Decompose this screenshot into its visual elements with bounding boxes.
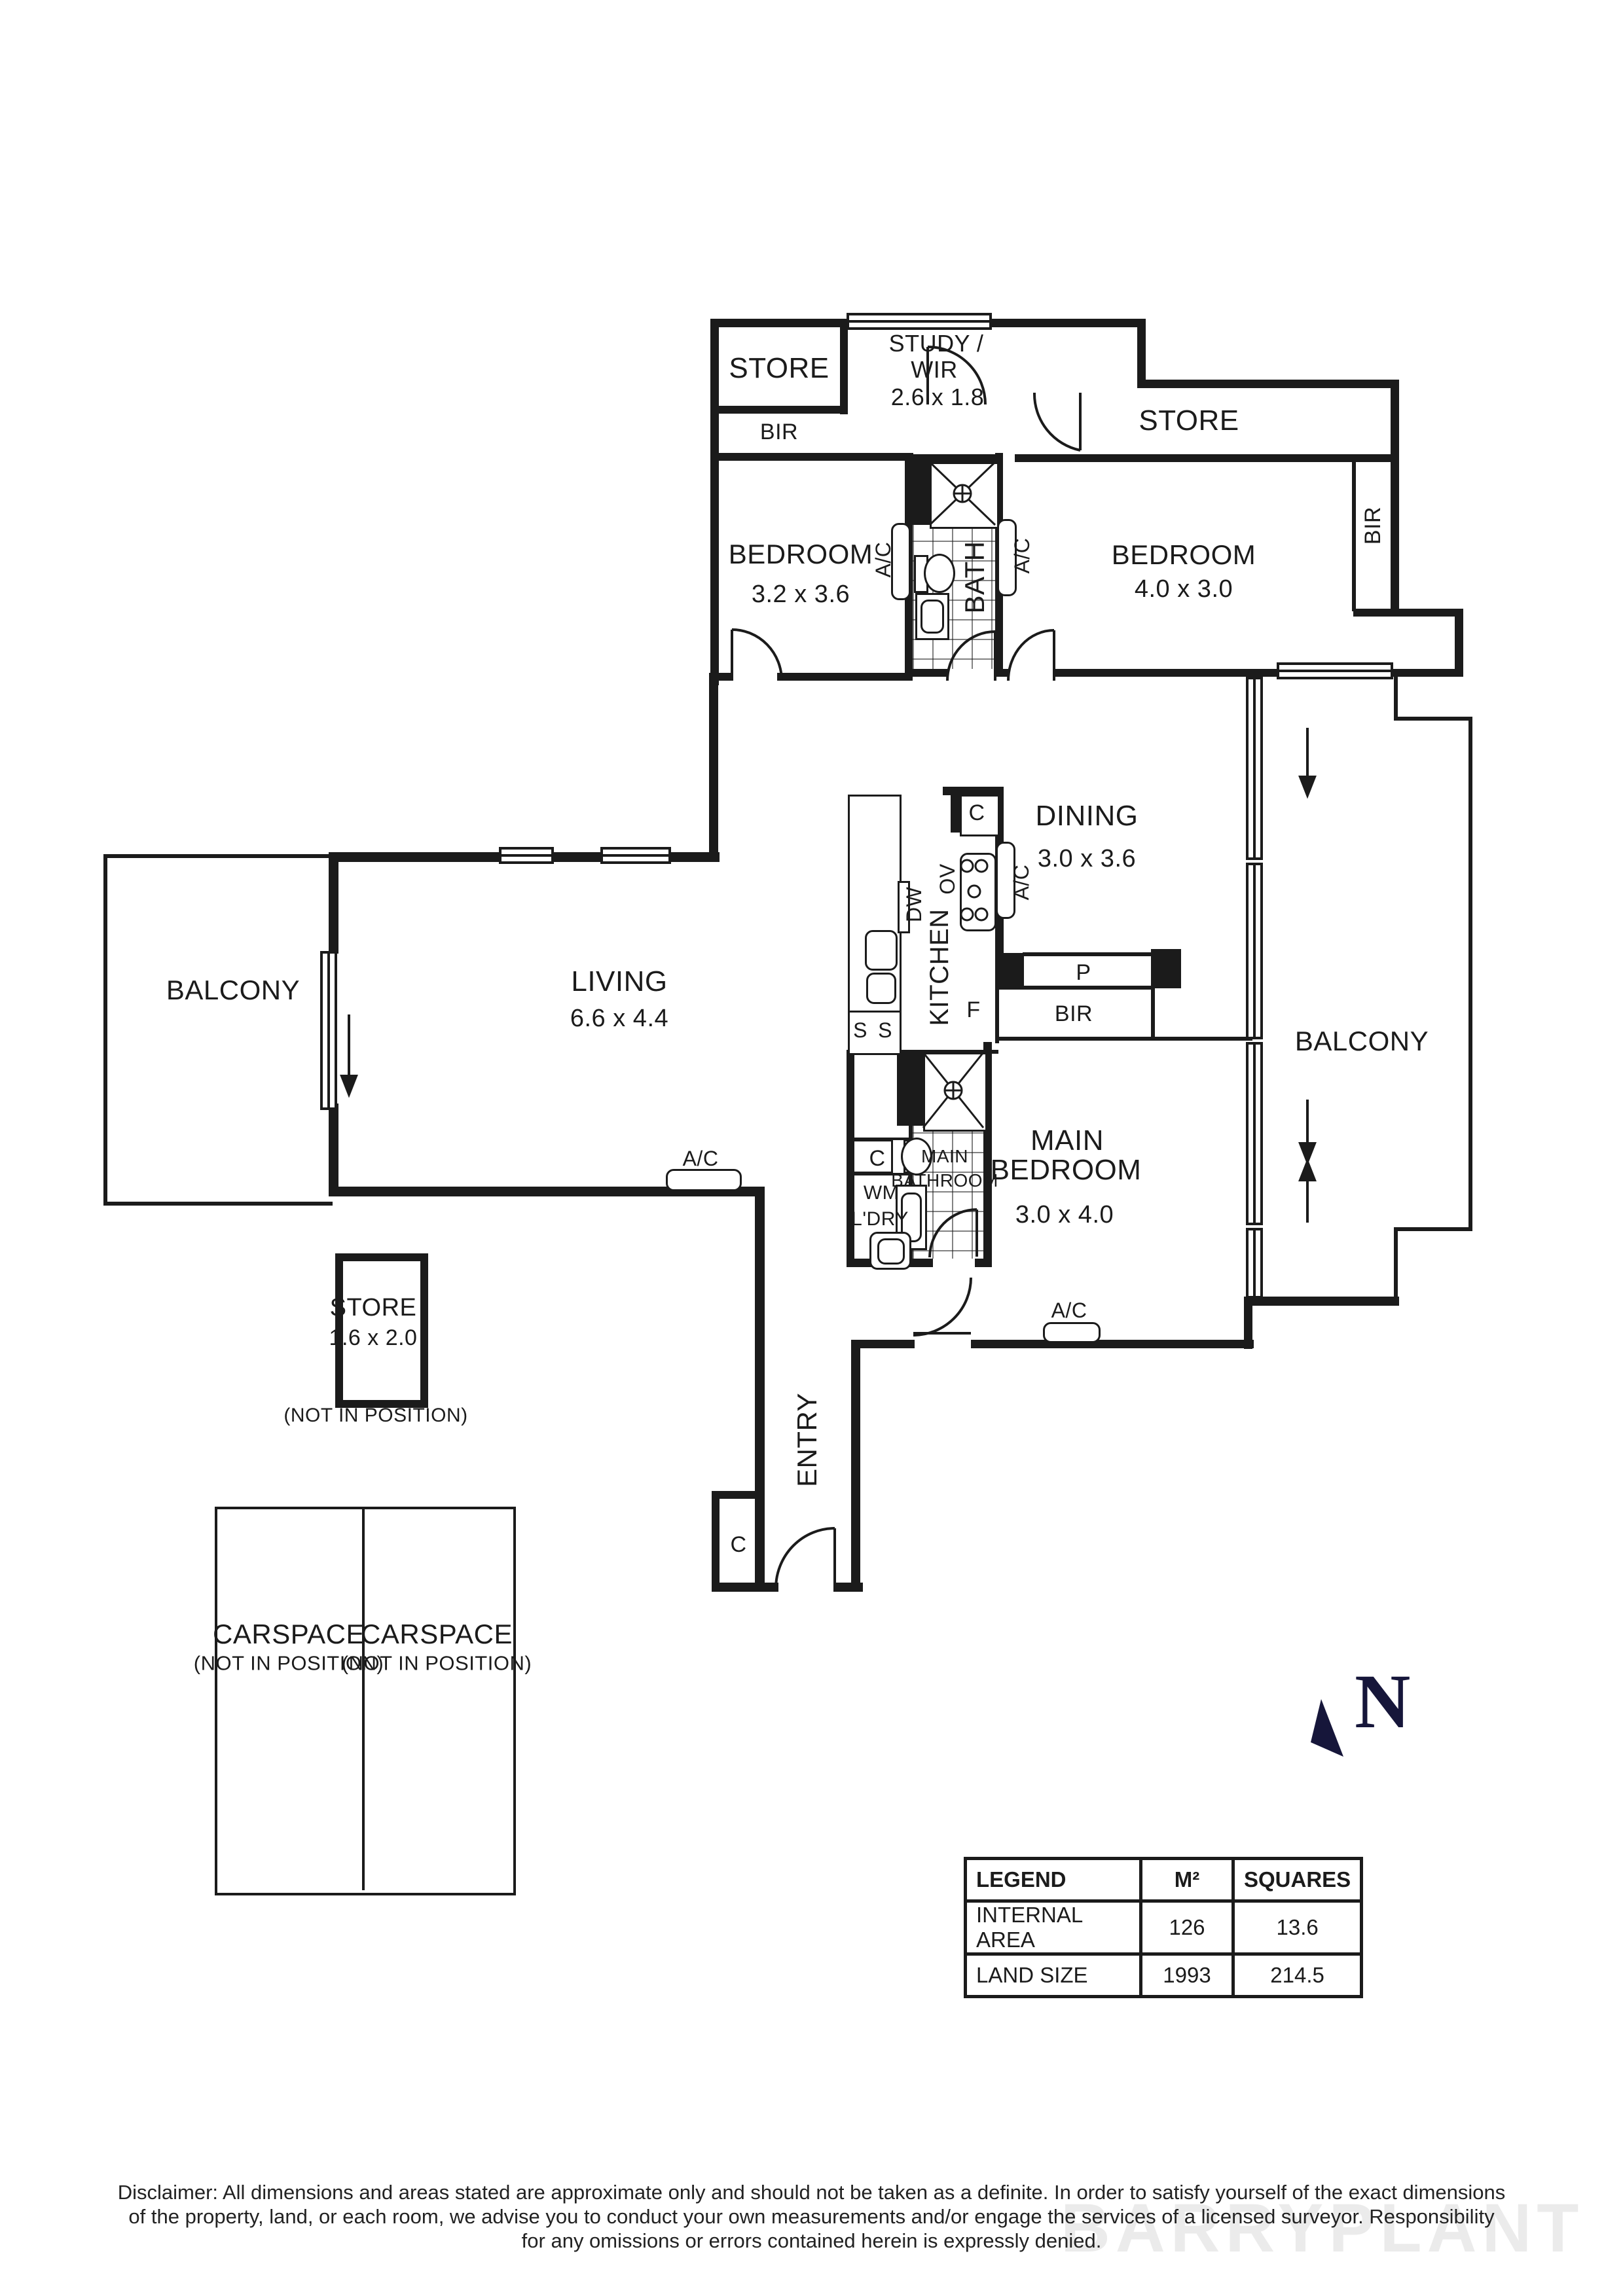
wall-segment <box>710 319 719 685</box>
legend-land-size-squares: 214.5 <box>1233 1954 1362 1997</box>
room-label-bath: BATH <box>961 541 989 614</box>
room-label-bedroom-right: BEDROOM <box>1112 541 1256 569</box>
label-cupboard-entry: C <box>730 1534 746 1556</box>
legend-land-size-m2: 1993 <box>1141 1954 1233 1997</box>
window-horizontal <box>847 313 992 330</box>
room-label-store-top-right: STORE <box>1139 406 1239 435</box>
thin-wall-segment <box>1352 458 1356 611</box>
wall-segment <box>712 1583 778 1592</box>
room-label-store-top-left: STORE <box>729 354 829 383</box>
north-needle-icon <box>1311 1699 1343 1757</box>
note-store-not-in-position: (NOT IN POSITION) <box>283 1406 467 1426</box>
label-ac-living: A/C <box>683 1148 719 1169</box>
thin-wall-segment <box>1394 1227 1398 1297</box>
wall-segment <box>1353 609 1463 617</box>
disclaimer-line-1: Disclaimer: All dimensions and areas sta… <box>0 2182 1623 2202</box>
wall-segment <box>709 673 718 861</box>
window-vertical <box>1246 1228 1263 1299</box>
floorplan-page: BARRYPLANT <box>0 0 1623 2296</box>
thin-wall-segment <box>1394 717 1472 721</box>
room-label-entry: ENTRY <box>793 1393 821 1487</box>
wall-segment <box>1252 669 1279 677</box>
legend-land-size-label: LAND SIZE <box>966 1954 1141 1997</box>
disclaimer-line-3: for any omissions or errors contained he… <box>0 2231 1623 2251</box>
cooktop <box>960 853 996 931</box>
dims-living: 6.6 x 4.4 <box>570 1006 668 1031</box>
wall-segment <box>840 319 848 414</box>
thin-wall-segment <box>997 1037 1154 1041</box>
dims-store-small: 1.6 x 2.0 <box>329 1327 418 1349</box>
dims-bedroom-right: 4.0 x 3.0 <box>1135 577 1233 601</box>
label-cupboard-kitchen: C <box>968 802 985 824</box>
room-label-bedroom-left: BEDROOM <box>729 541 873 568</box>
legend-internal-area-label: INTERNAL AREA <box>966 1901 1141 1954</box>
label-oven: OV <box>937 863 958 894</box>
room-label-main-bedroom-line1: MAIN <box>1030 1126 1104 1155</box>
label-fridge: F <box>966 999 980 1021</box>
label-ac-main-bedroom: A/C <box>1051 1300 1087 1321</box>
legend-row-internal-area: INTERNAL AREA 126 13.6 <box>966 1901 1362 1954</box>
wall-segment <box>847 1054 854 1266</box>
legend-header-row: LEGEND M² SQUARES <box>966 1859 1362 1901</box>
wall-segment <box>971 1340 1254 1348</box>
wall-segment <box>665 852 720 862</box>
wall-segment <box>329 852 500 862</box>
wall-segment <box>984 319 1146 327</box>
wall-segment <box>712 1491 764 1499</box>
wall-segment <box>755 1187 765 1584</box>
carspace-box <box>215 1507 516 1895</box>
vanity-basin-bath <box>921 600 944 634</box>
legend-internal-area-squares: 13.6 <box>1233 1901 1362 1954</box>
label-pantry: P <box>1076 961 1091 984</box>
wall-segment <box>1388 669 1457 677</box>
wall-segment <box>860 1340 915 1348</box>
shower-bath <box>930 462 999 529</box>
wall-segment <box>329 861 338 954</box>
dims-bedroom-left: 3.2 x 3.6 <box>752 582 850 607</box>
wall-segment <box>1054 669 1252 677</box>
window-horizontal <box>600 847 671 864</box>
wall-segment <box>1015 454 1391 462</box>
legend-internal-area-m2: 126 <box>1141 1901 1233 1954</box>
wall-segment <box>712 1491 720 1590</box>
room-label-main-bedroom-line2: BEDROOM <box>991 1156 1142 1185</box>
wall-segment <box>833 1583 863 1592</box>
room-label-study-line1: STUDY / <box>889 332 984 355</box>
wall-segment <box>995 953 1024 988</box>
label-cupboard-laundry: C <box>869 1147 885 1170</box>
room-label-store-small: STORE <box>330 1295 417 1320</box>
wall-segment <box>710 406 840 414</box>
wall-segment <box>1244 1297 1399 1306</box>
wall-segment <box>547 852 602 862</box>
label-bir-main: BIR <box>1055 1003 1093 1025</box>
room-label-balcony-right: BALCONY <box>1295 1028 1429 1055</box>
thin-wall-segment <box>103 854 331 858</box>
label-sink-right: S <box>878 1020 892 1041</box>
window-vertical <box>1246 863 1263 1039</box>
sink-basin-small <box>866 973 896 1004</box>
room-label-main-bathroom-line1: MAIN <box>921 1147 968 1166</box>
window-horizontal <box>1277 662 1393 679</box>
dims-main-bedroom: 3.0 x 4.0 <box>1015 1202 1114 1227</box>
dims-study: 2.6 x 1.8 <box>891 386 985 409</box>
room-label-study-line2: WIR <box>911 358 957 382</box>
label-ac-dining: A/C <box>1011 865 1032 901</box>
room-label-main-bathroom-line2: BATHROOM <box>891 1172 998 1190</box>
legend-header-m2: M² <box>1141 1859 1233 1901</box>
wall-segment <box>951 795 960 833</box>
thin-wall-segment <box>1151 986 1155 1041</box>
thin-wall-segment <box>103 1202 333 1206</box>
ac-unit-living <box>666 1169 742 1191</box>
label-ac-bath-left: A/C <box>873 542 894 578</box>
thin-wall-segment <box>1023 952 1152 956</box>
thin-wall-segment <box>1154 1037 1252 1041</box>
note-carspace-2: (NOT IN POSITION) <box>342 1653 532 1674</box>
window-vertical <box>1246 1042 1263 1225</box>
thin-wall-segment <box>995 958 999 1043</box>
legend-table: LEGEND M² SQUARES INTERNAL AREA 126 13.6… <box>964 1857 1363 1998</box>
washing-machine-drum <box>877 1238 905 1265</box>
room-label-living: LIVING <box>571 967 667 996</box>
wall-segment <box>1137 380 1399 388</box>
ac-unit-main-bedroom <box>1043 1322 1101 1343</box>
wall-segment <box>1137 319 1146 388</box>
wall-segment <box>1391 380 1399 617</box>
room-label-kitchen: KITCHEN <box>926 908 953 1026</box>
room-label-balcony-left: BALCONY <box>166 977 300 1004</box>
carspace-divider <box>362 1507 365 1890</box>
legend-header-legend: LEGEND <box>966 1859 1141 1901</box>
room-label-carspace-2: CARSPACE <box>361 1621 513 1648</box>
dims-dining: 3.0 x 3.6 <box>1038 846 1136 871</box>
thin-wall-segment <box>1394 1227 1472 1231</box>
wall-segment <box>329 1103 338 1196</box>
legend-row-land-size: LAND SIZE 1993 214.5 <box>966 1954 1362 1997</box>
label-dishwasher: DW <box>903 887 924 922</box>
wall-segment <box>851 1340 860 1592</box>
label-sink-left: S <box>853 1020 867 1041</box>
wall-segment <box>1151 949 1181 988</box>
north-label: N <box>1355 1663 1411 1740</box>
legend-header-squares: SQUARES <box>1233 1859 1362 1901</box>
sink-basin-large <box>865 930 898 971</box>
thin-wall-segment <box>1468 717 1472 1231</box>
window-vertical <box>320 951 337 1110</box>
toilet-bowl-bath <box>924 554 955 593</box>
wall-segment <box>710 319 849 327</box>
label-washing-machine: WM <box>864 1183 899 1203</box>
room-label-carspace-1: CARSPACE <box>213 1621 365 1648</box>
label-bir-right: BIR <box>1362 507 1384 545</box>
thin-wall-segment <box>997 986 1153 990</box>
label-bir-top-left: BIR <box>760 421 798 443</box>
window-vertical <box>1246 677 1263 860</box>
room-label-dining: DINING <box>1036 802 1139 831</box>
plan-symbols-overlay <box>0 0 1623 2296</box>
shower-main-bathroom <box>923 1052 987 1132</box>
room-label-laundry: L'DRY <box>851 1210 909 1229</box>
thin-wall-segment <box>1394 677 1398 720</box>
wall-segment <box>1455 609 1463 677</box>
thin-wall-segment <box>103 854 107 1206</box>
wall-segment <box>710 453 913 461</box>
window-horizontal <box>499 847 554 864</box>
wall-segment <box>777 673 905 681</box>
label-ac-bath-right: A/C <box>1012 538 1032 574</box>
disclaimer-line-2: of the property, land, or each room, we … <box>0 2206 1623 2227</box>
